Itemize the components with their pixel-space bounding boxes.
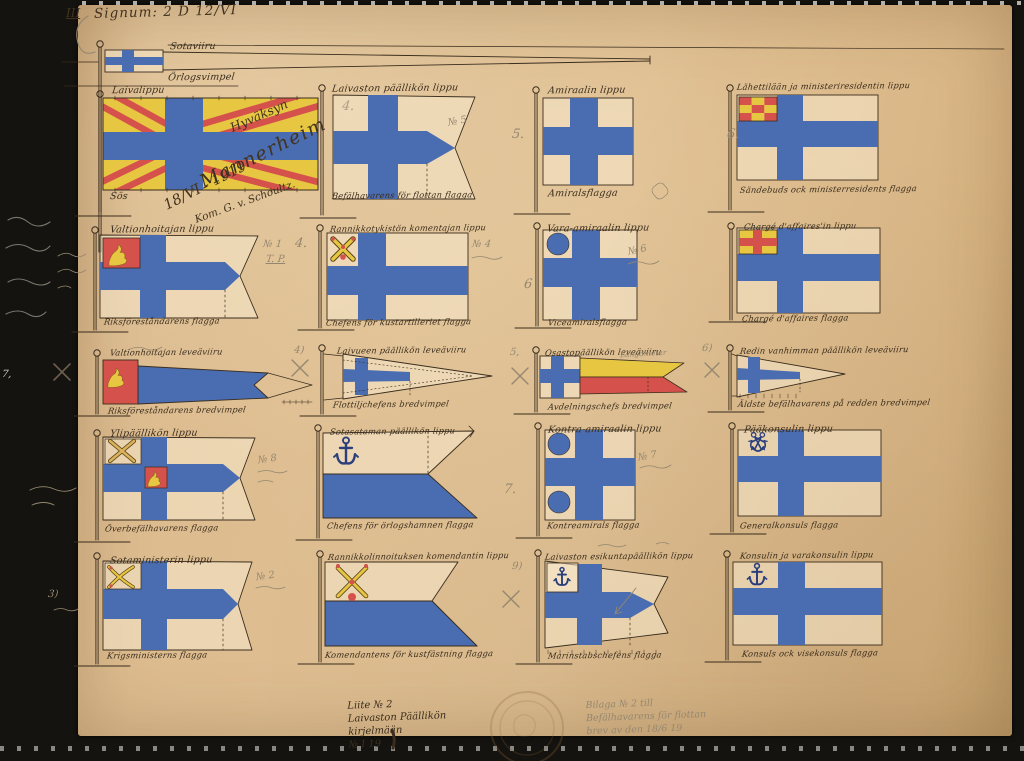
flag-caption-sv: Riksföreståndarens bredvimpel bbox=[107, 405, 246, 416]
flag-caption-fi: Sotaministerin lippu bbox=[109, 555, 213, 567]
flag-rannikkotykiston bbox=[327, 233, 468, 320]
flag-sotasataman bbox=[323, 426, 477, 518]
flag-charge-daffaires bbox=[737, 228, 880, 313]
pennant-osastopaallikon bbox=[540, 356, 687, 398]
flag-rannikkolinnoituksen bbox=[325, 562, 477, 646]
flag-caption-fi: Laivueen päällikön leveäviiru bbox=[336, 345, 467, 355]
flag-caption-sv: Chefens för kustartilleriet flagga bbox=[325, 317, 472, 328]
pencil-note: 6) bbox=[701, 344, 712, 354]
pencil-note: T. P. bbox=[265, 255, 286, 265]
flag-caption-sv: Sös bbox=[109, 192, 128, 203]
flag-caption-sv: Flottiljchefens bredvimpel bbox=[332, 399, 449, 409]
flag-caption-sv: Avdelningschefs bredvimpel bbox=[547, 401, 672, 411]
embossed-seal bbox=[491, 692, 563, 761]
flag-caption-fi: Pääkonsulin lippu bbox=[743, 425, 833, 436]
top-pennant-label-sv: Örlogsvimpel bbox=[167, 73, 235, 84]
flag-caption-fi: Laivaston esikuntapäällikön lippu bbox=[544, 551, 694, 562]
flag-caption-fi: Valtionhoitajan leveäviiru bbox=[109, 347, 223, 357]
flag-caption-fi: Amiraalin lippu bbox=[547, 86, 626, 97]
flag-caption-fi: Laivaston päällikön lippu bbox=[331, 83, 459, 95]
flag-vara-amiraalin bbox=[543, 230, 637, 320]
flag-sotaministerin bbox=[103, 561, 252, 650]
flag-caption-fi: Kontra-amiraalin lippu bbox=[547, 424, 662, 436]
flag-caption-sv: Krigsministerns flagga bbox=[106, 650, 208, 660]
flag-valtionhoitajan bbox=[100, 235, 258, 318]
pencil-note: 6 bbox=[523, 278, 533, 291]
flag-caption-sv: Chargé d'affaires flagga bbox=[741, 313, 849, 323]
flag-caption-fi: Rannikkotykistön komentajan lippu bbox=[329, 223, 486, 234]
pencil-note: 4. bbox=[294, 237, 308, 250]
pennant-laivueen bbox=[324, 354, 492, 400]
flag-caption-fi: Rannikkolinnoituksen komendantin lippu bbox=[327, 551, 509, 562]
scanned-flag-sheet: { "header": { "numeral": "III", "signum"… bbox=[0, 0, 1024, 761]
pennant-valtionhoitajan bbox=[103, 360, 312, 404]
pennant-redin bbox=[732, 354, 845, 398]
pencil-note: 7. bbox=[503, 483, 517, 496]
flag-konsulin bbox=[733, 562, 882, 645]
margin-chalk-marks bbox=[6, 217, 76, 505]
margin-mark: 7, bbox=[1, 370, 12, 380]
flag-caption-fi: Valtionhoitajan lippu bbox=[109, 224, 215, 236]
flag-caption-sv: Generalkonsuls flagga bbox=[739, 520, 839, 530]
flag-caption-fi: Konsulin ja varakonsulin lippu bbox=[739, 550, 874, 561]
ink-filing-note: Liite № 2 Laivaston Päällikön kirjelmään… bbox=[347, 696, 447, 751]
pencil-note: 5. bbox=[511, 128, 525, 141]
flag-caption-sv: Befälhavarens för flottan flagga bbox=[331, 190, 473, 201]
flag-caption-sv: Chefens för örlogshamnen flagga bbox=[326, 520, 474, 531]
flag-ylipaallikon bbox=[103, 437, 255, 520]
flag-kontra-amiraalin bbox=[545, 430, 635, 520]
flag-caption-fi: Laivalippu bbox=[111, 86, 165, 97]
pencil-note: 6. bbox=[726, 128, 740, 141]
flag-laivaston-paallikon bbox=[333, 95, 475, 199]
flag-caption-fi: Redin vanhimman päällikön leveäviiru bbox=[739, 345, 909, 356]
flag-caption-sv: Komendantens för kustfästning flagga bbox=[324, 649, 494, 660]
flag-paakonsulin bbox=[738, 429, 881, 516]
flag-caption-fi: Ylipäällikön lippu bbox=[109, 429, 198, 440]
pencil-note: № 1 bbox=[262, 240, 282, 250]
flag-caption-sv: Viceamiralsflagga bbox=[547, 318, 627, 328]
flag-caption-sv: Marinstabschefens flagga bbox=[547, 650, 662, 660]
pencil-note: 4. bbox=[341, 100, 355, 113]
flag-caption-sv: Kontreamirals flagga bbox=[546, 521, 640, 531]
flag-caption-sv: Konsuls ock visekonsuls flagga bbox=[741, 648, 878, 659]
pencil-note: 3) bbox=[47, 590, 58, 600]
pencil-filing-note: Bilaga № 2 till Befälhavarens för flotta… bbox=[585, 696, 706, 739]
flag-caption-sv: Amiralsflagga bbox=[547, 189, 618, 200]
sheet-numeral: III bbox=[66, 6, 80, 20]
flag-caption-sv: Sändebuds ock ministerresidents flagga bbox=[739, 184, 917, 195]
flag-caption-sv: Överbefälhavarens flagga bbox=[104, 523, 219, 533]
flag-amiraalin bbox=[543, 98, 668, 199]
pencil-note: № 4 bbox=[471, 240, 491, 250]
flag-lahettilaan bbox=[737, 95, 878, 180]
flag-caption-fi: Sotasataman päällikön lippu bbox=[329, 426, 455, 436]
pencil-note: 4) bbox=[293, 346, 304, 356]
pencil-note: 5, bbox=[509, 348, 520, 358]
flag-caption-sv: Riksföreståndarens flagga bbox=[103, 316, 220, 326]
flag-caption-fi: Vara-amiraalin lippu bbox=[546, 223, 650, 235]
flag-caption-fi: Chargé d'affaires'in lippu bbox=[743, 221, 857, 231]
top-pennant-label-fi: Sotaviiru bbox=[169, 42, 216, 53]
flag-esikuntapaallikon bbox=[545, 561, 668, 654]
flag-caption-fi: Lähettilään ja ministeriresidentin lippu bbox=[736, 81, 910, 92]
pencil-note: 9) bbox=[511, 562, 522, 572]
